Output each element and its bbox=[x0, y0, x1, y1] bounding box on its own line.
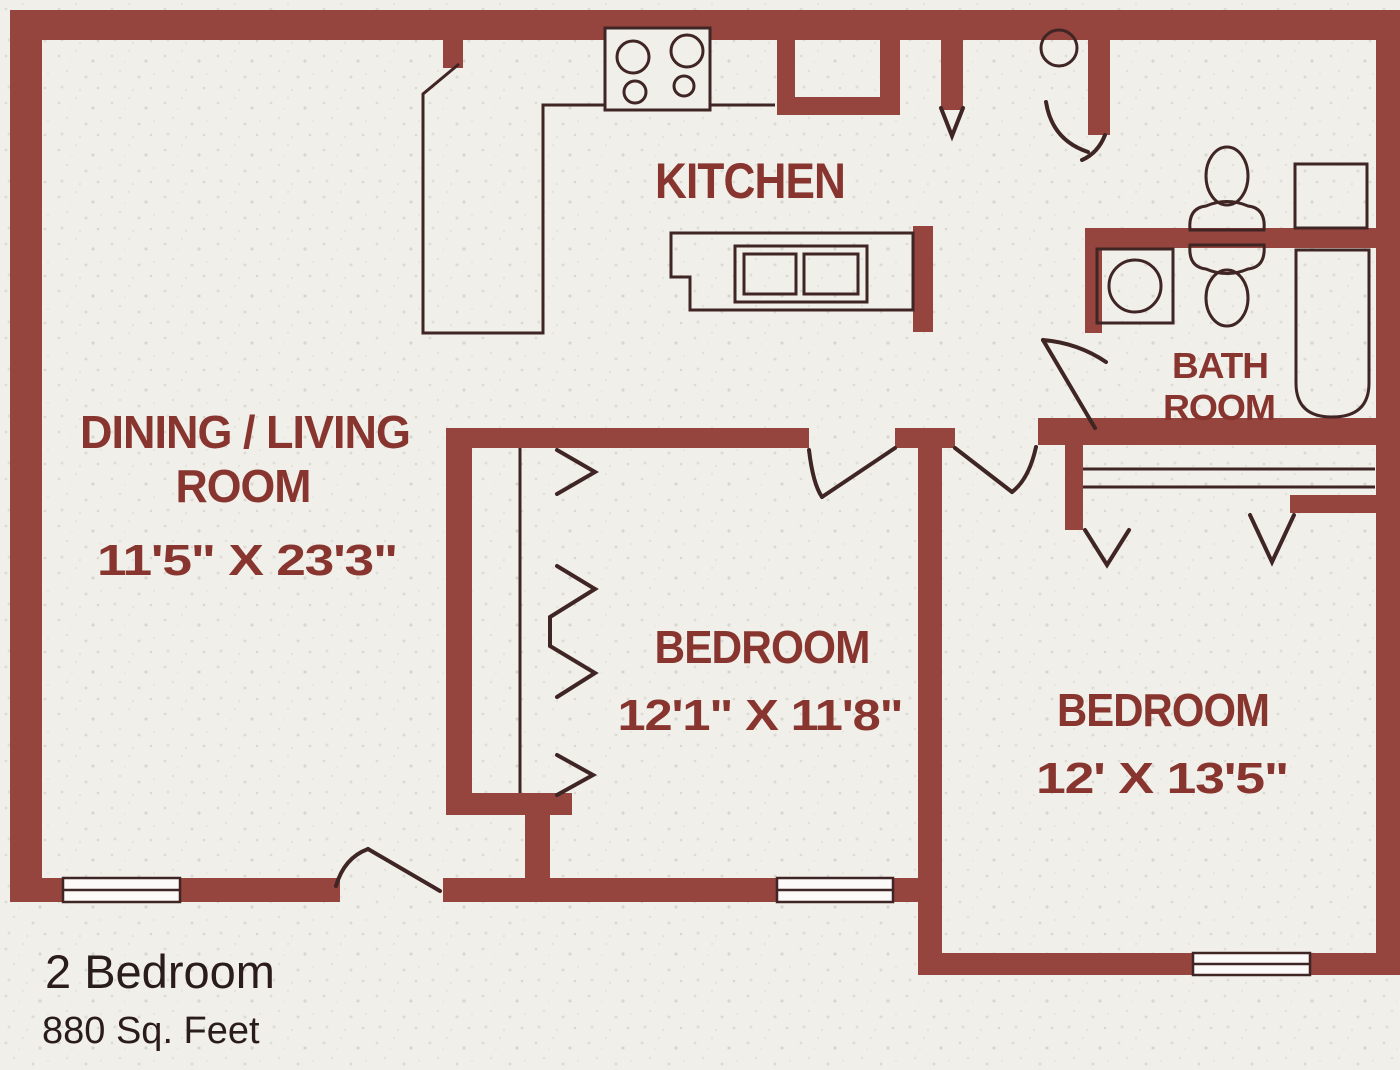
wall-counter-stub bbox=[443, 36, 463, 68]
wall-outer-right bbox=[1376, 10, 1400, 975]
room-label-bathroom-line1: BATH bbox=[1172, 345, 1268, 386]
window-icon bbox=[777, 878, 893, 902]
room-dimensions-bedroom2: 12' X 13'5" bbox=[1036, 754, 1288, 803]
plan-title-line2: 880 Sq. Feet bbox=[42, 1010, 260, 1052]
wall-hall-a bbox=[446, 428, 809, 448]
wall-utility-right bbox=[1088, 10, 1110, 135]
wall-closet-stub bbox=[525, 815, 550, 878]
room-label-kitchen: KITCHEN bbox=[655, 153, 845, 209]
room-label-dining-living-line2: ROOM bbox=[176, 460, 311, 512]
wall-dining-bottom-right bbox=[180, 878, 340, 902]
wall-kitchen-stub-right bbox=[880, 28, 900, 115]
window-icon bbox=[63, 878, 180, 902]
floor-plan-drawing: KITCHEN DINING / LIVING ROOM 11'5" X 23'… bbox=[0, 0, 1400, 1070]
room-dimensions-bedroom1: 12'1" X 11'8" bbox=[618, 691, 903, 740]
wall-dining-divider bbox=[446, 428, 472, 815]
floor-plan: KITCHEN DINING / LIVING ROOM 11'5" X 23'… bbox=[0, 0, 1400, 1070]
room-label-dining-living-line1: DINING / LIVING bbox=[80, 406, 410, 458]
wall-hall-stub bbox=[941, 28, 963, 110]
room-label-bedroom2: BEDROOM bbox=[1057, 684, 1269, 736]
wall-bedroom2-bottom-right bbox=[1310, 953, 1400, 975]
window-icon bbox=[1193, 953, 1310, 975]
plan-title-line1: 2 Bedroom bbox=[45, 945, 275, 998]
wall-dining-jog bbox=[446, 793, 572, 815]
wall-hall-b bbox=[895, 428, 955, 448]
wall-bathroom-left bbox=[1085, 248, 1102, 333]
wall-bedroom2-bottom-left bbox=[920, 953, 1193, 975]
room-label-bedroom1: BEDROOM bbox=[655, 621, 870, 673]
wall-outer-left bbox=[10, 10, 42, 902]
stove-burners-icon bbox=[605, 28, 710, 110]
room-label-bathroom-line2: ROOM bbox=[1163, 387, 1275, 428]
wall-bedroom-divider bbox=[918, 433, 942, 975]
wall-bedroom2-closet-stub bbox=[1065, 445, 1083, 530]
room-dimensions-dining-living: 11'5" X 23'3" bbox=[97, 536, 397, 585]
wall-dining-bottom-left bbox=[10, 878, 63, 902]
wall-bedroom1-bottom-left bbox=[443, 878, 777, 902]
wall-island-right bbox=[913, 226, 933, 332]
wall-bedroom2-closet-return bbox=[1290, 495, 1378, 513]
